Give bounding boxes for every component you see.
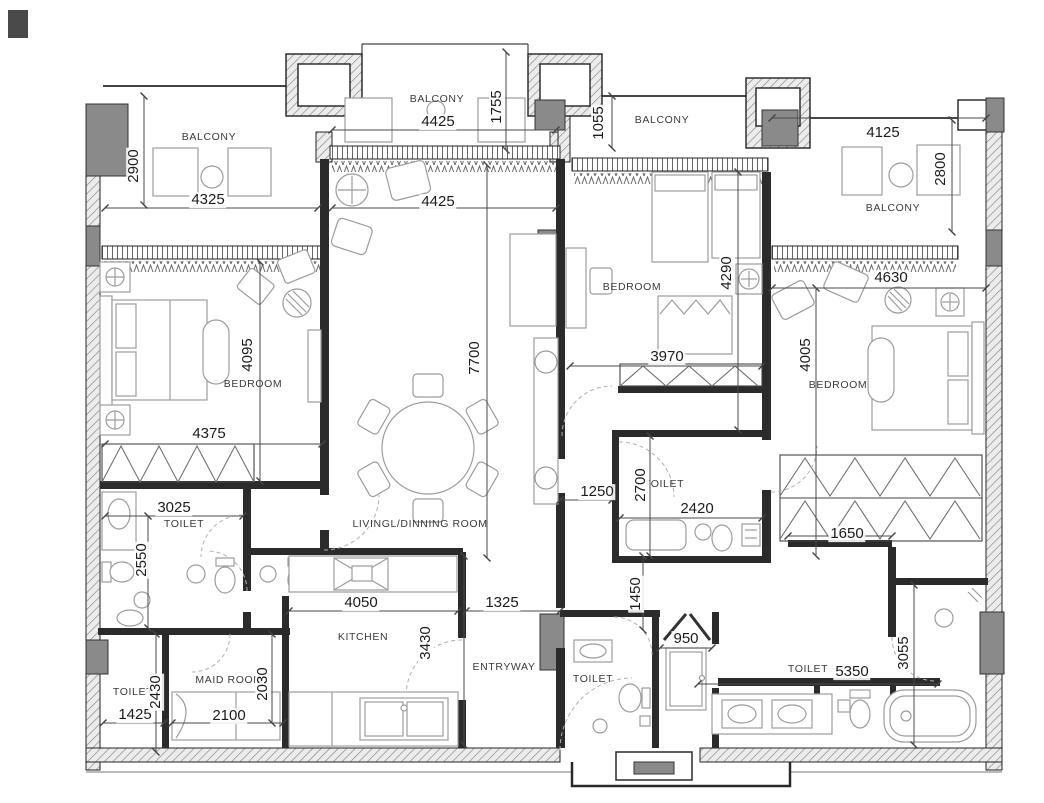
furniture-bedroom-center: [566, 172, 762, 354]
window-bedroom-center: [572, 158, 768, 171]
furniture-maid-room: [172, 692, 280, 740]
furniture-toilet-center: [626, 520, 760, 551]
furniture-toilet-left: [102, 492, 306, 626]
window-bedroom-right: [772, 246, 958, 259]
furniture-entry-toilet: [574, 640, 650, 733]
niche-double-doors: [664, 614, 710, 640]
floor-plan-svg: [0, 0, 1044, 803]
page-corner-mark: [8, 10, 28, 38]
furniture-living-room: [330, 160, 558, 522]
furniture-bedroom-left: [100, 249, 321, 435]
furniture-niche-cabinet: [666, 648, 706, 710]
entry-door-mat: [634, 762, 674, 774]
window-living: [330, 146, 560, 159]
furniture-bedroom-right: [771, 261, 984, 434]
floor-plan-page: BALCONY BALCONY BALCONY BALCONY BEDROOM …: [0, 0, 1044, 803]
furniture-toilet-right: [712, 588, 982, 742]
furniture-kitchen: [289, 556, 458, 746]
